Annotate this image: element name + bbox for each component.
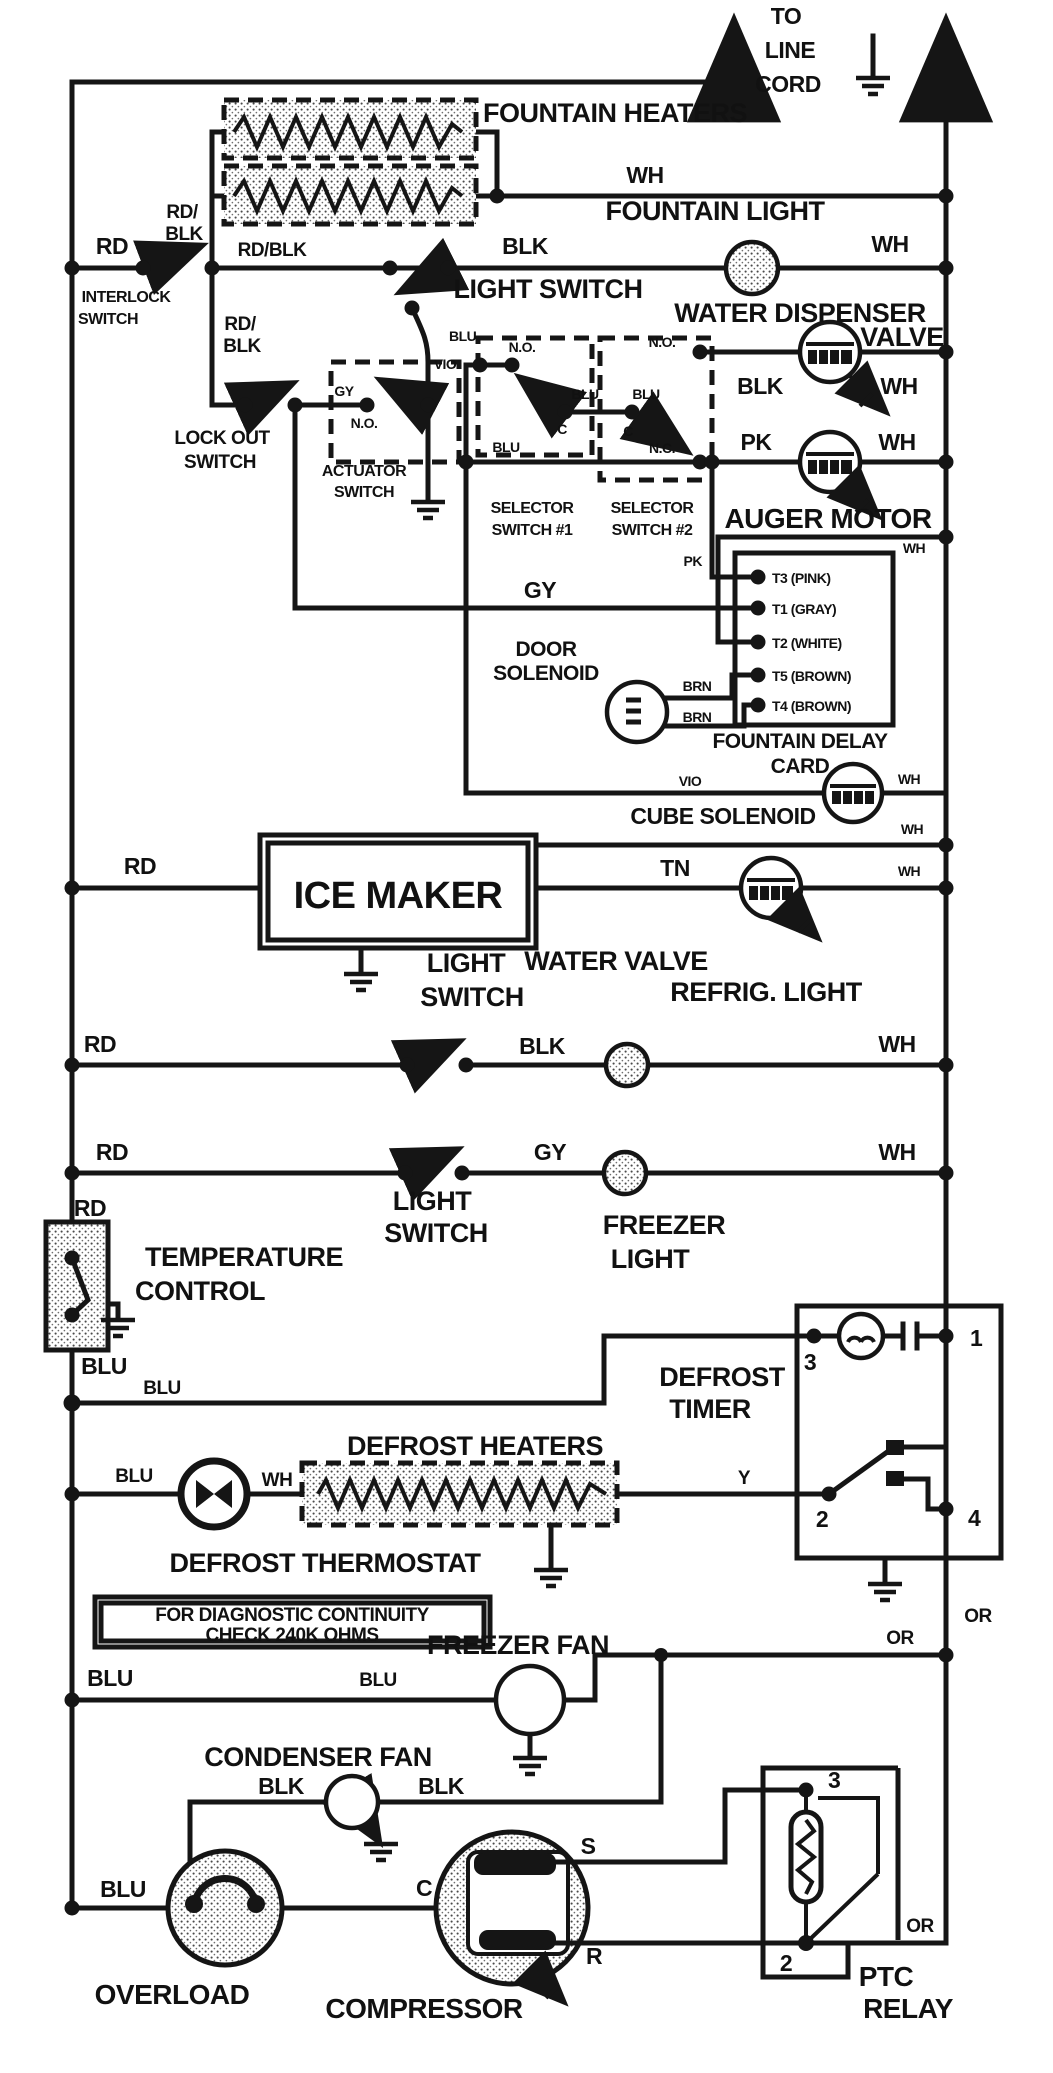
refrig-light-lamp [606, 1044, 648, 1086]
label-wh-heaters: WH [626, 162, 663, 188]
label-selector-1: SELECTOR [491, 500, 575, 517]
label-t5-brown: T5 (BROWN) [772, 668, 851, 684]
defrost-heater-box [302, 1463, 617, 1525]
label-r-comp: R [586, 1943, 603, 1969]
label-t3-pink: T3 (PINK) [772, 570, 831, 586]
label-y: Y [738, 1468, 751, 1489]
label-wh-freezer: WH [878, 1139, 915, 1165]
label-blu-ff2: BLU [359, 1670, 397, 1691]
compressor-symbol [436, 1832, 588, 2000]
label-vio: VIO [434, 356, 457, 372]
compressor-wires [552, 1790, 946, 1943]
condenser-fan-motor [326, 1776, 378, 1828]
label-actuator-switch: SWITCH [334, 484, 394, 501]
defrost-heater-ground-icon [534, 1570, 568, 1586]
timer-capacitor [903, 1324, 917, 1348]
label-pk-t3: PK [684, 553, 703, 569]
label-refrig-light: REFRIG. LIGHT [670, 977, 862, 1007]
label-light-switch-top: LIGHT SWITCH [454, 274, 643, 304]
line-cord-ground-icon [856, 78, 890, 94]
label-freezer-light: LIGHT [611, 1244, 690, 1274]
label-blu-dh: BLU [115, 1466, 153, 1487]
timer-switch-arm [829, 1450, 890, 1494]
label-blk-cf2: BLK [418, 1773, 465, 1799]
timer-contact-1 [886, 1440, 904, 1455]
label-t4-brown: T4 (BROWN) [772, 698, 851, 714]
label-note-1: FOR DIAGNOSTIC CONTINUITY [155, 1605, 429, 1626]
blu-drop [412, 308, 428, 405]
label-brn-1: BRN [683, 678, 712, 694]
label-or-rail: OR [964, 1606, 992, 1627]
start-winding [474, 1853, 556, 1875]
door-solenoid-symbol [607, 682, 667, 742]
label-blu-c1: BLU [571, 386, 599, 402]
label-temperature: TEMPERATURE [145, 1242, 343, 1272]
label-fountain-light: FOUNTAIN LIGHT [606, 196, 826, 226]
label-or-ptc: OR [906, 1916, 934, 1937]
freezer-fan-ground-icon [513, 1758, 547, 1774]
label-blk-light: BLK [502, 233, 549, 259]
label-freezer: FREEZER [603, 1210, 726, 1240]
label-cord: CORD [755, 71, 821, 97]
label-line: LINE [765, 37, 816, 63]
label-blk-refrig: BLK [519, 1033, 566, 1059]
overload-symbol [168, 1851, 282, 1965]
valve-flow-arrow [848, 374, 884, 410]
wiring-diagram: TO LINE CORD FOUNTAIN HEATERS WH FOUNTAI… [0, 0, 1053, 2073]
label-pin2: 2 [816, 1506, 828, 1532]
label-brn-2: BRN [683, 709, 712, 725]
water-valve-coil [741, 858, 816, 936]
compressor-flow-arrow [540, 1978, 562, 2000]
label-wh-auger: WH [878, 429, 915, 455]
label-wh-wv: WH [898, 863, 921, 879]
label-no-sel1: N.O. [509, 339, 536, 355]
label-blu-timer: BLU [143, 1378, 181, 1399]
label-door: DOOR [516, 638, 577, 661]
freezer-fan-motor [496, 1666, 564, 1734]
label-blu-c2: BLU [632, 386, 660, 402]
label-blu-drop: BLU [449, 328, 477, 344]
label-ptc: PTC [859, 1961, 914, 1992]
label-valve: VALVE [860, 322, 944, 352]
timer-contact-stubs [904, 1447, 946, 1509]
interlock-switch-arm [143, 247, 198, 268]
label-lock-out-switch: SWITCH [184, 452, 256, 473]
label-c-comp: C [416, 1875, 432, 1901]
label-light-rf: LIGHT [427, 948, 506, 978]
left-rail [72, 82, 734, 1908]
label-s-comp: S [581, 1833, 596, 1859]
label-rd-icemaker: RD [124, 853, 156, 879]
label-pin4: 4 [968, 1505, 981, 1531]
label-ptc-pin2: 2 [780, 1950, 792, 1976]
label-gy-t1: GY [524, 577, 556, 603]
label-interlock: INTERLOCK [82, 289, 172, 306]
run-winding [479, 1930, 556, 1950]
label-wh-im: WH [901, 821, 924, 837]
label-defrost-heaters: DEFROST HEATERS [347, 1431, 603, 1461]
freezer-switch-arm [405, 1151, 454, 1173]
ice-maker-ground-icon [344, 974, 378, 990]
label-blu-bottom: BLU [492, 439, 520, 455]
label-wh-refrig: WH [878, 1031, 915, 1057]
water-valve-flow-arrow [790, 910, 816, 936]
label-switch-1: SWITCH #1 [492, 522, 573, 539]
temperature-control-box [46, 1222, 108, 1350]
label-light-fz: LIGHT [393, 1186, 472, 1216]
label-gy-actuator: GY [334, 383, 354, 399]
ice-maker-rows [72, 845, 946, 888]
label-wh-cube: WH [898, 771, 921, 787]
label-rd-tc: RD [74, 1195, 106, 1221]
label-compressor: COMPRESSOR [325, 1993, 523, 2024]
label-fountain-heaters: FOUNTAIN HEATERS [483, 98, 747, 128]
label-timer: TIMER [669, 1394, 751, 1424]
label-wh-dh: WH [262, 1470, 293, 1491]
label-pin3: 3 [804, 1349, 816, 1375]
timer-motor [839, 1314, 883, 1358]
label-pin1: 1 [970, 1325, 983, 1351]
defrost-thermostat-symbol [181, 1461, 247, 1527]
label-to: TO [771, 3, 802, 29]
condenser-fan-ground-icon [364, 1844, 398, 1860]
label-ptc-pin3: 3 [828, 1767, 840, 1793]
label-water-valve: WATER VALVE [524, 946, 708, 976]
label-lock-out: LOCK OUT [174, 428, 270, 449]
label-wh-light: WH [871, 231, 908, 257]
label-door-solenoid: SOLENOID [493, 662, 599, 685]
schematic-page: TO LINE CORD FOUNTAIN HEATERS WH FOUNTAI… [0, 0, 1053, 2073]
label-card: CARD [771, 755, 830, 778]
label-cube-solenoid: CUBE SOLENOID [630, 803, 815, 829]
ptc-relay [763, 1768, 898, 1977]
label-rds-1: RD/ [166, 202, 198, 223]
label-note-2: CHECK 240K OHMS [205, 1625, 378, 1646]
label-actuator: ACTUATOR [322, 463, 407, 480]
label-condenser-fan: CONDENSER FAN [204, 1742, 432, 1772]
label-rdblk-row: RD/BLK [238, 240, 308, 261]
label-defrost-thermostat: DEFROST THERMOSTAT [170, 1548, 482, 1578]
label-wh-wdv: WH [880, 373, 917, 399]
label-rds-2: RD/ [224, 314, 256, 335]
label-blu-ov: BLU [100, 1876, 146, 1902]
label-auger-motor: AUGER MOTOR [724, 503, 931, 534]
fountain-light-lamp [726, 242, 778, 294]
label-gy-freezer: GY [534, 1139, 566, 1165]
label-or-ff: OR [886, 1628, 914, 1649]
label-blks-2: BLK [223, 336, 261, 357]
label-rd-freezer: RD [96, 1139, 128, 1165]
label-switch-fz: SWITCH [384, 1218, 487, 1248]
label-ice-maker: ICE MAKER [294, 875, 503, 917]
label-switch-2: SWITCH #2 [612, 522, 693, 539]
label-tn: TN [660, 855, 690, 881]
label-c-sel2: C [623, 423, 633, 439]
label-freezer-fan: FREEZER FAN [427, 1630, 609, 1660]
label-c-sel1: C [557, 421, 567, 437]
selector1-arm [523, 380, 565, 412]
label-switch-rf: SWITCH [420, 982, 523, 1012]
label-interlock-switch: SWITCH [78, 311, 138, 328]
label-vio-cube: VIO [679, 773, 702, 789]
timer-contact-4 [886, 1471, 904, 1486]
label-blu-tc: BLU [81, 1353, 127, 1379]
label-overload: OVERLOAD [95, 1979, 250, 2010]
label-no-actuator: N.O. [351, 415, 378, 431]
label-rd-interlock: RD [96, 233, 128, 259]
auger-motor-coil [800, 432, 876, 514]
label-t1-gray: T1 (GRAY) [772, 601, 836, 617]
label-blk-wdv: BLK [737, 373, 784, 399]
label-t2-white: T2 (WHITE) [772, 635, 842, 651]
label-defrost: DEFROST [659, 1362, 786, 1392]
brn-wires [665, 675, 758, 726]
label-rd-refrig: RD [84, 1031, 116, 1057]
timer-ground-icon [868, 1584, 902, 1600]
label-blu-ff: BLU [87, 1665, 133, 1691]
label-wh-t2: WH [903, 540, 926, 556]
label-relay: RELAY [863, 1993, 954, 2024]
label-blks-1: BLK [165, 224, 203, 245]
label-nc-sel2: N.C. [649, 440, 675, 456]
label-fountain-delay: FOUNTAIN DELAY [712, 730, 888, 753]
label-no-sel2: N.O. [649, 334, 676, 350]
cube-solenoid-coil [824, 764, 882, 822]
actuator-switch-box [331, 362, 459, 462]
label-blk-cf1: BLK [258, 1773, 305, 1799]
refrig-switch-arm [407, 1043, 456, 1065]
label-control: CONTROL [135, 1276, 265, 1306]
freezer-light-lamp [604, 1152, 646, 1194]
label-pk-auger: PK [741, 429, 773, 455]
label-selector-2: SELECTOR [611, 500, 695, 517]
actuator-ground-icon [411, 502, 445, 518]
